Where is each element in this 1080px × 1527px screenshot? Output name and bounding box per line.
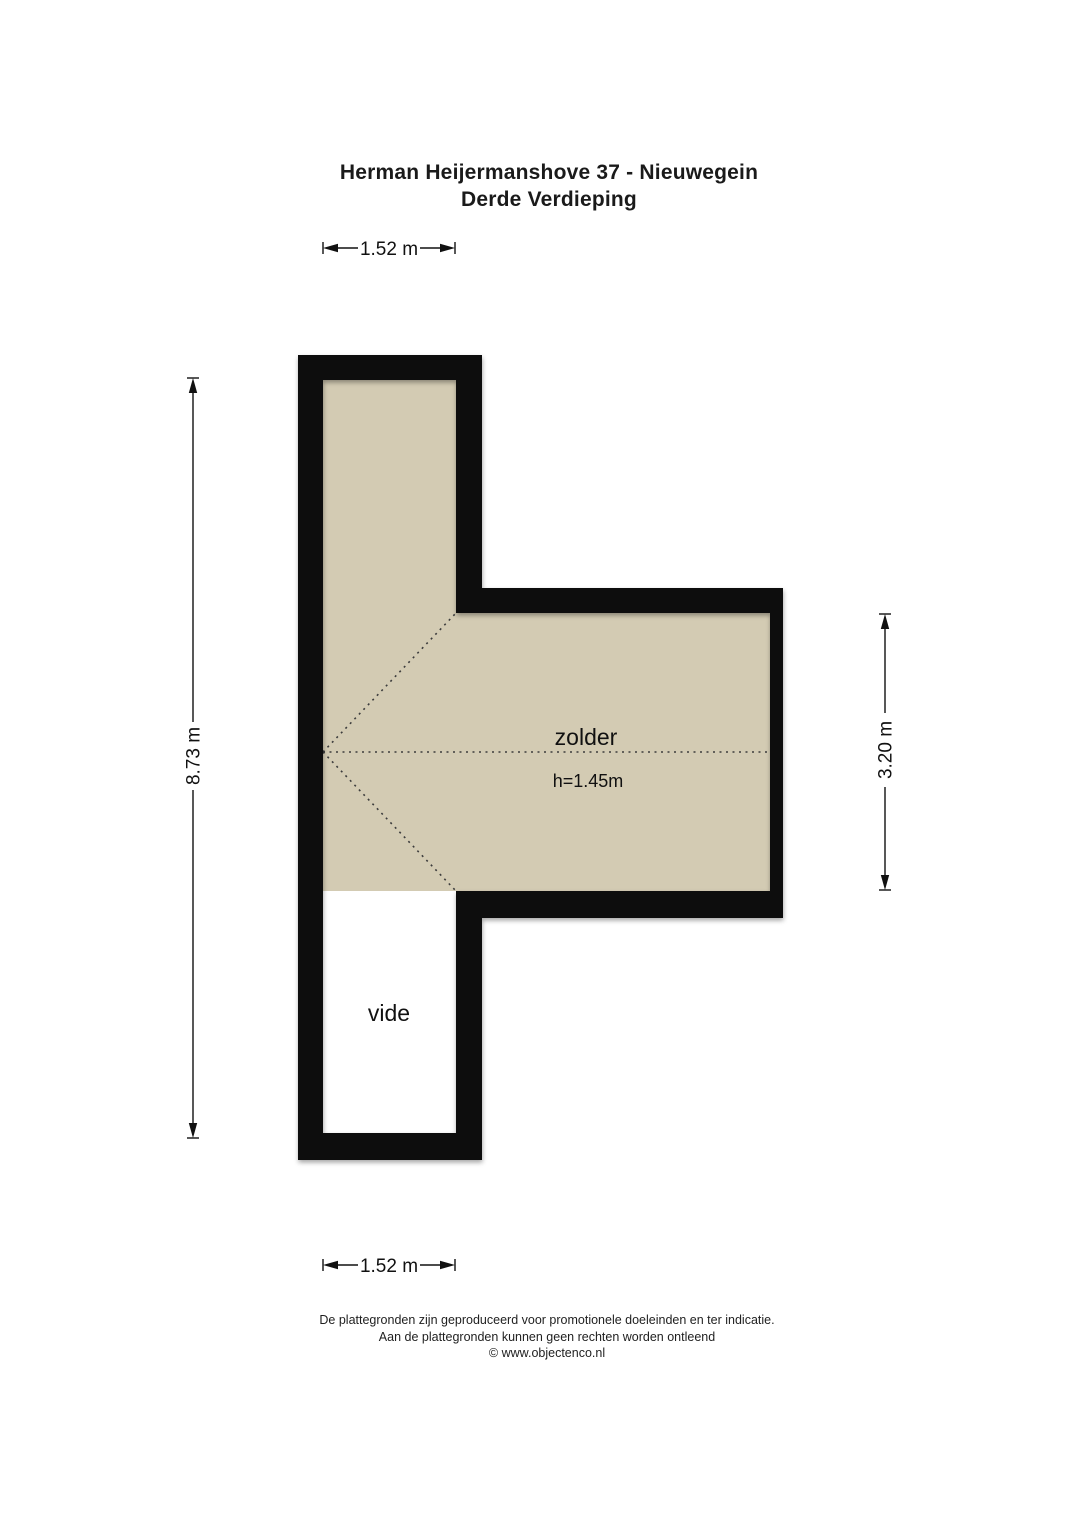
arrowhead-right-icon [440,1261,455,1269]
arrowhead-right-icon [440,244,455,252]
copyright-line: © www.objectenco.nl [7,1345,1080,1362]
disclaimer-line-2: Aan de plattegronden kunnen geen rechten… [7,1329,1080,1346]
dimension-arrow-right: 3.20 m [876,614,897,890]
arrowhead-up-icon [189,378,197,393]
zolder-room-label: zolder [555,724,618,750]
floorplan-page: Herman Heijermanshove 37 - Nieuwegein De… [0,0,1080,1527]
dimension-label-left: 8.73 m [184,727,205,785]
arrowhead-up-icon [881,614,889,629]
arrowhead-left-icon [323,1261,338,1269]
disclaimer-line-1: De plattegronden zijn geproduceerd voor … [7,1312,1080,1329]
dimension-label-top: 1.52 m [360,239,418,260]
arrowhead-left-icon [323,244,338,252]
zolder-room-area [323,380,770,891]
dimension-arrow-top: 1.52 m [323,239,455,260]
vide-room-label: vide [368,1000,410,1026]
footer-disclaimer: De plattegronden zijn geproduceerd voor … [7,1312,1080,1362]
floorplan-drawing: zolder h=1.45m vide 1.52 m 1.52 m [0,0,1080,1527]
dimension-label-bottom: 1.52 m [360,1256,418,1277]
arrowhead-down-icon [881,875,889,890]
dimension-arrow-left: 8.73 m [184,378,205,1138]
dimension-label-right: 3.20 m [876,721,897,779]
zolder-height-note: h=1.45m [553,771,624,791]
dimension-arrow-bottom: 1.52 m [323,1256,455,1277]
arrowhead-down-icon [189,1123,197,1138]
